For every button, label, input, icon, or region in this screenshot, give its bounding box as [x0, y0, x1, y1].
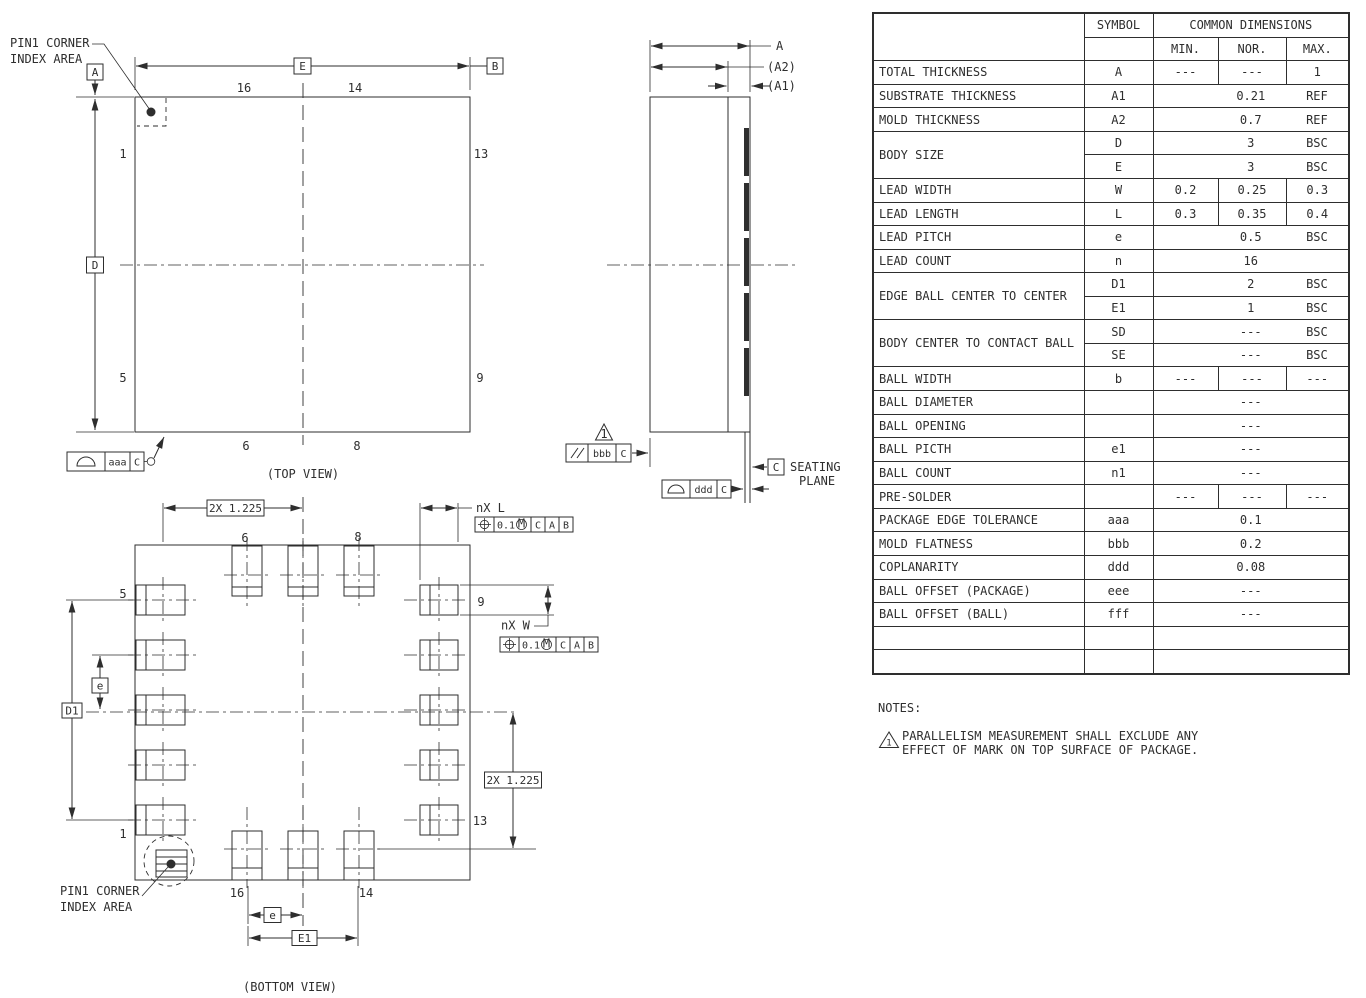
svg-text:0.1: 0.1 — [522, 641, 540, 652]
datum-b-label: B — [492, 60, 499, 73]
note-1-text: PARALLELISM MEASUREMENT SHALL EXCLUDE AN… — [902, 729, 1198, 757]
pad-3 — [128, 687, 200, 733]
table-row: BODY SIZED 3BSC — [873, 131, 1349, 155]
seating-plane: C SEATING PLANE — [745, 432, 841, 503]
svg-text:C: C — [535, 521, 541, 532]
pad-2 — [128, 742, 200, 788]
pad-9 — [404, 577, 466, 623]
d1-label: D1 — [65, 705, 78, 718]
pad-7 — [280, 538, 326, 608]
dim-a2-label: (A2) — [767, 60, 796, 74]
table-row: BALL WIDTHb --------- — [873, 367, 1349, 391]
pitch-dimension-left: e — [92, 655, 133, 709]
datum-a-label: A — [92, 66, 99, 79]
pad-12 — [404, 742, 466, 788]
svg-text:B: B — [563, 521, 569, 532]
table-row: BALL COUNTn1 --- — [873, 461, 1349, 485]
d1-dimension: D1 — [62, 600, 133, 820]
pad-14 — [336, 807, 382, 888]
header-common-dimensions: COMMON DIMENSIONS — [1153, 13, 1349, 37]
pin-label-16: 16 — [230, 886, 244, 900]
table-row: BALL OPENING --- — [873, 414, 1349, 438]
pin-label-6: 6 — [242, 439, 249, 453]
lead-width-label: nX W — [501, 619, 531, 633]
table-row: BALL OFFSET (BALL)fff --- — [873, 603, 1349, 627]
note-flag-number: 1 — [600, 427, 607, 441]
pad-16 — [224, 807, 270, 888]
pin1-corner-label: PIN1 CORNER — [10, 36, 90, 50]
pad-10 — [404, 632, 466, 678]
half-pitch-x-value: 2X 1.225 — [209, 502, 262, 515]
aaa-datum-ref: C — [134, 458, 140, 469]
notes-section: NOTES: 1 PARALLELISM MEASUREMENT SHALL E… — [878, 701, 1248, 757]
package-drawing-canvas: PIN1 CORNER INDEX AREA E B A D — [0, 0, 860, 998]
bottom-view: PIN1 CORNER INDEX AREA 2X 1.225 nX L — [60, 497, 598, 994]
pad-6 — [224, 538, 270, 608]
pin-label-8: 8 — [354, 530, 361, 544]
pitch-label: e — [269, 909, 276, 922]
fcf-position-lead-width: 0.1 M C A B — [500, 637, 598, 653]
position-tolerance: 0.1 — [497, 521, 515, 532]
table-row: BALL DIAMETER --- — [873, 391, 1349, 415]
seating-plane-label-1: SEATING — [790, 460, 841, 474]
pad-8 — [336, 538, 382, 608]
e-body-dimension: E B — [135, 57, 503, 90]
notes-title: NOTES: — [878, 701, 1248, 715]
pad-11 — [404, 687, 466, 733]
pin1-index-label: INDEX AREA — [60, 900, 133, 914]
pitch-label: e — [97, 680, 104, 693]
fcf-coplanarity-ddd: ddd C — [662, 480, 769, 498]
pin-label-1: 1 — [119, 147, 126, 161]
thickness-dimensions: A (A2) (A1) — [650, 39, 796, 93]
dim-a1-label: (A1) — [767, 79, 796, 93]
top-view-caption: (TOP VIEW) — [267, 467, 339, 481]
table-row: MOLD FLATNESSbbb 0.2 — [873, 532, 1349, 556]
svg-text:A: A — [574, 641, 580, 652]
pad-5 — [128, 577, 200, 623]
pin-label-9: 9 — [476, 371, 483, 385]
pin-label-5: 5 — [119, 371, 126, 385]
note-flag-icon: 1 — [878, 731, 902, 752]
pin-label-8: 8 — [353, 439, 360, 453]
pitch-dimension-bottom: e — [248, 886, 302, 924]
header-nor: NOR. — [1218, 37, 1286, 61]
table-row: SUBSTRATE THICKNESSA1 0.21REF — [873, 84, 1349, 108]
table-row: COPLANARITYddd 0.08 — [873, 555, 1349, 579]
pin-label-5: 5 — [119, 587, 126, 601]
seating-plane-label-2: PLANE — [799, 474, 835, 488]
header-min: MIN. — [1153, 37, 1218, 61]
ddd-tolerance: ddd — [694, 485, 712, 496]
table-row: BODY CENTER TO CONTACT BALLSD ---BSC — [873, 320, 1349, 344]
table-row: EDGE BALL CENTER TO CENTERD1 2BSC — [873, 273, 1349, 297]
table-row: BALL PICTHe1 --- — [873, 438, 1349, 462]
lead-length-label: nX L — [476, 501, 505, 515]
pad-4 — [128, 632, 200, 678]
half-pitch-y-dimension: 2X 1.225 — [378, 713, 542, 849]
pin1-index-marker — [92, 44, 166, 126]
header-max: MAX. — [1286, 37, 1349, 61]
e1-label: E1 — [298, 932, 311, 945]
svg-text:M: M — [518, 517, 525, 531]
fcf-position-leads: 0.1 M C A B — [475, 517, 573, 533]
pin-label-14: 14 — [348, 81, 362, 95]
lead-pads — [128, 538, 466, 888]
datum-c-label: C — [773, 461, 780, 474]
table-row-empty — [873, 650, 1349, 674]
lead-length-dimension: nX L 0.1 M C A B — [420, 501, 573, 580]
datum-e-label: E — [299, 60, 306, 73]
table-row: PRE-SOLDER --------- — [873, 485, 1349, 509]
bottom-view-caption: (BOTTOM VIEW) — [243, 980, 337, 994]
top-view: PIN1 CORNER INDEX AREA E B A D — [10, 36, 503, 481]
datum-d-label: D — [92, 259, 99, 272]
pin-label-13: 13 — [474, 147, 488, 161]
pad-13 — [404, 797, 466, 843]
drawing-sheet: PIN1 CORNER INDEX AREA E B A D — [0, 0, 1366, 998]
all-around-icon — [147, 458, 155, 466]
svg-text:B: B — [588, 641, 594, 652]
header-empty — [873, 13, 1084, 61]
table-row: LEAD COUNTn 16 — [873, 249, 1349, 273]
table-row: LEAD PITCHe 0.5BSC — [873, 226, 1349, 250]
pin-label-14: 14 — [359, 886, 373, 900]
table-header-row: SYMBOL COMMON DIMENSIONS — [873, 13, 1349, 37]
side-leads — [744, 128, 749, 396]
table-row: MOLD THICKNESSA2 0.7REF — [873, 108, 1349, 132]
table-row: PACKAGE EDGE TOLERANCEaaa 0.1 — [873, 508, 1349, 532]
fcf-parallelism-bbb: bbb C 1 — [566, 424, 650, 467]
pin1-corner-label: PIN1 CORNER — [60, 884, 140, 898]
bbb-tolerance: bbb — [593, 449, 611, 460]
pin1-index-label: INDEX AREA — [10, 52, 83, 66]
package-outline-top — [135, 97, 470, 432]
pin-label-1: 1 — [119, 827, 126, 841]
aaa-tolerance: aaa — [108, 458, 126, 469]
half-pitch-x-dimension: 2X 1.225 — [163, 500, 302, 542]
pin1-index-marker — [142, 836, 194, 896]
pin1-dot — [147, 108, 156, 117]
a-datum-flag: A — [87, 64, 103, 95]
pin-label-13: 13 — [473, 814, 487, 828]
half-pitch-y-value: 2X 1.225 — [487, 774, 540, 787]
dim-a-label: A — [776, 39, 784, 53]
header-symbol: SYMBOL — [1084, 13, 1153, 37]
table-row: BALL OFFSET (PACKAGE)eee --- — [873, 579, 1349, 603]
table-row: LEAD WIDTHW 0.20.250.3 — [873, 178, 1349, 202]
svg-text:1: 1 — [886, 739, 891, 749]
svg-text:C: C — [560, 641, 566, 652]
ddd-datum-ref: C — [721, 485, 727, 496]
svg-text:A: A — [549, 521, 555, 532]
table-row: LEAD LENGTHL 0.30.350.4 — [873, 202, 1349, 226]
pin-label-6: 6 — [241, 531, 248, 545]
fcf-profile-aaa: aaa C — [67, 437, 164, 471]
side-view: A (A2) (A1) bbb C 1 — [566, 39, 841, 503]
pin-label-9: 9 — [477, 595, 484, 609]
table-row-empty — [873, 626, 1349, 650]
pin-label-16: 16 — [237, 81, 251, 95]
svg-text:M: M — [543, 637, 550, 651]
table-row: TOTAL THICKNESSA ------1 — [873, 61, 1349, 85]
common-dimensions-table: SYMBOL COMMON DIMENSIONS MIN. NOR. MAX. … — [872, 12, 1350, 675]
bbb-datum-ref: C — [620, 449, 626, 460]
package-outline-side — [650, 97, 750, 432]
